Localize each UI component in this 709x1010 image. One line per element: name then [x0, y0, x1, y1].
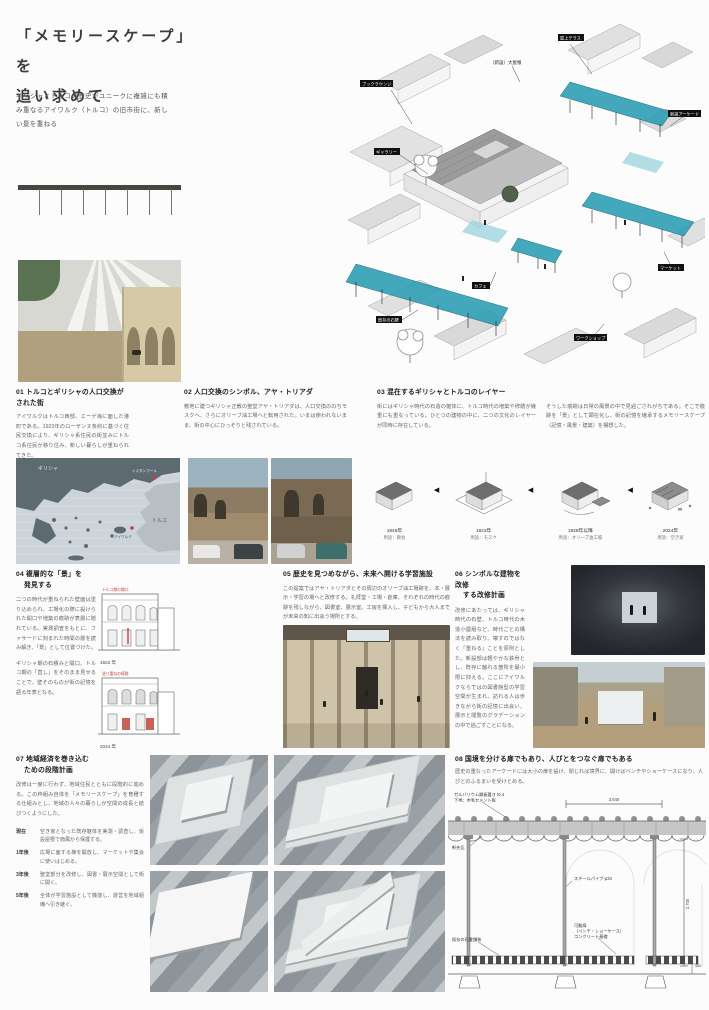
timeline-diagram-2: [452, 466, 516, 518]
timeline-diagram-4: [638, 466, 702, 518]
main-axonometric-drawing: 屋上テラス ブックラウンジ ギャラリー カフェ ワークショップ マーケット 新設…: [172, 24, 705, 382]
section-08-sub: 歴史の重なったアーケードには大小の扉を設け、閉じれば境界に、開けばベンチやショー…: [455, 768, 703, 787]
render-exhibition-dark: [571, 565, 705, 655]
car: [277, 544, 305, 558]
canopy-section-detail: 3,640: [448, 788, 706, 1004]
section-03-body-left: 街にはギリシャ時代の石造の躯体に、トルコ時代の増築や修繕が幾重にも重なっている。…: [377, 403, 536, 432]
map-label-turkey: トルコ: [152, 518, 167, 524]
dim-footing-label: 450: [695, 964, 701, 968]
aegean-map: ギリシャ トルコ イスタンブール アイワルク: [16, 458, 180, 564]
dim-width-label: 3,640: [609, 797, 620, 802]
section-04-heading-2: 発見する: [16, 581, 96, 592]
timeline-year: 1846年: [358, 527, 431, 534]
section-07-body: 改修は一度に行わず、地域住民とともに段階的に進める。この枠組み自体を「メモリース…: [16, 781, 144, 820]
axon-label: マーケット: [660, 264, 681, 271]
facade-elevation-1922: トルコ期の開口: [98, 584, 180, 658]
timeline-arrow-icon: ◀: [431, 466, 442, 494]
person-silhouette: [653, 712, 656, 721]
phase-text: 広場に面する棟を開放し、マーケットや集会に使いはじめる。: [40, 849, 144, 866]
section-01-body: アイワルクはトルコ西部、エーゲ海に面した港町である。1923年のローザンヌ条約に…: [16, 413, 129, 461]
section-04-body-2: ギリシャ期の石積みと開口、トルコ期の「直し」をそのまま見せることで、壁そのものが…: [16, 660, 96, 699]
dimension-height: 2,700: [680, 839, 690, 966]
section-05: 05 歴史を見つめながら、未来へ開ける学習施設 この提案ではアヤ・トリアダとその…: [283, 570, 450, 623]
bench-showcase-band: [452, 956, 698, 964]
ayvalik-marker: [130, 526, 134, 530]
section-06-heading-1: 06 シンボルな建物を改修: [455, 570, 525, 591]
model-photo-phase-3: [150, 871, 268, 992]
axon-label: 屋上テラス: [560, 34, 581, 41]
section-04: 04 複層的な「景」を 発見する 二つの時代が重ねられた壁面は塗り込められ、工場…: [16, 570, 96, 698]
building-history-timeline: 1846年 用途：教会 ◀ 1923年 用途：モスク ◀ 1: [358, 466, 705, 541]
timeline-arrow-icon: ◀: [625, 466, 636, 494]
section-04-body-1: 二つの時代が重ねられた壁面は塗り込められ、工場化の際に設けられた開口や増築の痕跡…: [16, 596, 96, 654]
photo-ruin-facade-1: [188, 458, 268, 564]
phase-text: 空き家となった既存躯体を実測・調査し、仮設屋根で雨風から保護する。: [40, 828, 144, 845]
timeline-item: 1928年以降 用途：オリーブ油工場: [536, 466, 624, 541]
person-silhouette: [365, 689, 368, 697]
timeline-item: 1846年 用途：教会: [358, 466, 431, 541]
projection-screen: [622, 592, 657, 623]
lead-paragraph: ギリシャとトルコの歴史がユニークに複雑にも積み重なるアイワルク（トルコ）の旧市街…: [16, 90, 168, 132]
person-silhouette: [643, 606, 646, 615]
dimension-width: 3,640: [566, 797, 662, 808]
section-07: 07 地域経済を巻き込む ための段階計画 改修は一度に行わず、地域住民とともに段…: [16, 755, 144, 914]
section-07-heading-1: 07 地域経済を巻き込む: [16, 755, 144, 766]
dim-height-label: 2,700: [685, 898, 690, 909]
section-06-body: 改修にあたっては、ギリシャ時代の石壁、トルコ時代の木造小屋組など、時代ごとの構法…: [455, 607, 525, 732]
building-left: [533, 667, 578, 725]
render-posts: [18, 189, 181, 214]
presentation-board: 「メモリースケープ」を 追い求めて ギリシャとトルコの歴史がユニークに複雑にも積…: [0, 0, 709, 1010]
label-roof-2: 下地：木毛セメント板: [454, 797, 497, 804]
person-silhouette: [630, 605, 633, 615]
timeline-use: 用途：モスク: [442, 535, 525, 541]
model-photo-phase-4: [274, 871, 445, 992]
label-paving: 既存の石畳舗装: [452, 936, 482, 943]
person-silhouette: [585, 717, 588, 724]
detail-labels: ガルバリウム鋼板葺き t0.4 下地：木毛セメント板 軒先瓦 スチールパイプ φ…: [452, 791, 624, 943]
ruin-opening: [284, 490, 299, 518]
render-interior-library: [283, 625, 450, 748]
render-street-view: [18, 150, 181, 256]
ruin-opening: [215, 500, 226, 519]
facade-elevation-2024: 塗り重ねの痕跡: [98, 668, 180, 742]
car: [316, 543, 347, 559]
section-02: 02 人口交換のシンボル、アヤ・トリアダ 敷地に建つギリシャ正教の聖堂アヤ・トリ…: [184, 388, 347, 431]
ruin-opening: [313, 494, 324, 515]
clerestory-window: [346, 629, 390, 642]
axon-note: （新設）大屋根: [490, 59, 522, 66]
timeline-use: 用途：空き家: [636, 535, 705, 541]
axon-label: 既存の石壁: [378, 316, 399, 323]
model-photo-phase-1: [150, 755, 268, 865]
section-07-heading-2: ための段階計画: [16, 766, 144, 777]
elevation-caption-1: 1922 年: [100, 660, 116, 666]
phase-text: 全体が学習施設として機能し、運営を地域組織へ引き継ぐ。: [40, 892, 144, 909]
person-silhouette: [380, 699, 383, 705]
phase-item: 1年後 広場に面する棟を開放し、マーケットや集会に使いはじめる。: [16, 849, 144, 866]
timeline-year: 1923年: [442, 527, 525, 534]
label-tile: 軒先瓦: [452, 844, 465, 851]
arch-opening: [127, 327, 140, 365]
elevation-note-2: 塗り重ねの痕跡: [102, 671, 129, 676]
section-03: 03 混在するギリシャとトルコのレイヤー 街にはギリシャ時代の石造の躯体に、トル…: [377, 388, 705, 431]
elevation-note-1: トルコ期の開口: [102, 587, 129, 592]
car: [234, 544, 263, 559]
section-06: 06 シンボルな建物を改修 する改修計画 改修にあたっては、ギリシャ時代の石壁、…: [455, 570, 525, 732]
section-04-heading-1: 04 複層的な「景」を: [16, 570, 96, 581]
phase-label: 1年後: [16, 849, 37, 866]
render-under-canopy: [18, 260, 181, 382]
person-silhouette: [417, 696, 420, 702]
timeline-item: 2024年 用途：空き家: [636, 466, 705, 541]
timeline-arrow-icon: ◀: [525, 466, 536, 494]
label-pipe: スチールパイプ φ34: [574, 876, 613, 882]
istanbul-marker: [152, 476, 156, 480]
dog: [132, 350, 141, 355]
large-roof: [150, 871, 253, 958]
timeline-diagram-1: [362, 466, 426, 518]
phase-item: 現在 空き家となった既存躯体を実測・調査し、仮設屋根で雨風から保護する。: [16, 828, 144, 845]
phase-label: 3年後: [16, 871, 37, 888]
trace-marker-red: [122, 718, 130, 730]
section-02-body: 敷地に建つギリシャ正教の聖堂アヤ・トリアダは、人口交換ののちモスクへ、さらにオリ…: [184, 403, 347, 432]
section-01-heading: 01 トルコとギリシャの人口交換がされた街: [16, 388, 129, 409]
section-06-heading-2: する改修計画: [455, 591, 525, 602]
person-silhouette: [323, 701, 326, 707]
elevation-caption-2: 2024 年: [100, 744, 116, 750]
title-line-1: 「メモリースケープ」を: [16, 22, 196, 82]
timeline-diagram-3: [548, 466, 612, 518]
section-05-heading: 05 歴史を見つめながら、未来へ開ける学習施設: [283, 570, 450, 581]
section-01: 01 トルコとギリシャの人口交換がされた街 アイワルクはトルコ西部、エーゲ海に面…: [16, 388, 129, 461]
label-footing: コンクリート基礎: [574, 933, 608, 940]
timeline-use: 用途：教会: [358, 535, 431, 541]
phase-item: 3年後 聖堂部分を改修し、図書・展示空間として街に開く。: [16, 871, 144, 888]
doorway: [356, 667, 378, 709]
phase-item: 5年後 全体が学習施設として機能し、運営を地域組織へ引き継ぐ。: [16, 892, 144, 909]
phase-text: 聖堂部分を改修し、図書・展示空間として街に開く。: [40, 871, 144, 888]
building-right: [664, 667, 705, 725]
tiled-canopy-roof: [448, 816, 706, 841]
timeline-year: 1928年以降: [536, 527, 624, 534]
axon-label: 新設アーケード: [670, 110, 699, 117]
phase-label: 5年後: [16, 892, 37, 909]
ruin-opening: [194, 494, 207, 517]
section-02-heading: 02 人口交換のシンボル、アヤ・トリアダ: [184, 388, 347, 399]
steel-posts: [464, 835, 659, 966]
timeline-use: 用途：オリーブ油工場: [536, 535, 624, 541]
trace-marker-red: [146, 718, 154, 730]
section-05-body: この提案ではアヤ・トリアダとその周辺のオリーブ油工場跡を、本・展示・学習の場へと…: [283, 585, 450, 624]
section-08-heading: 08 国境を分ける扉でもあり、人びとをつなぐ扉でもある: [455, 755, 705, 766]
section-03-body-right: そうした痕跡は日常の風景の中で見過ごされがちである。そこで痕跡を「景」として顕在…: [546, 403, 705, 432]
section-03-heading: 03 混在するギリシャとトルコのレイヤー: [377, 388, 705, 399]
model-photo-phase-2: [274, 755, 445, 865]
photo-ruin-facade-2: [271, 458, 352, 564]
timeline-year: 2024年: [636, 527, 705, 534]
map-label-istanbul: イスタンブール: [132, 468, 157, 473]
map-label-greece: ギリシャ: [38, 466, 58, 472]
car: [193, 545, 220, 558]
arch-opening: [145, 327, 158, 365]
axon-label: ブックラウンジ: [362, 80, 391, 87]
white-wall: [598, 691, 643, 724]
timeline-item: 1923年 用途：モスク: [442, 466, 525, 541]
phase-label: 現在: [16, 828, 37, 845]
render-courtyard: [533, 662, 705, 748]
map-label-ayvalik: アイワルク: [114, 534, 132, 539]
